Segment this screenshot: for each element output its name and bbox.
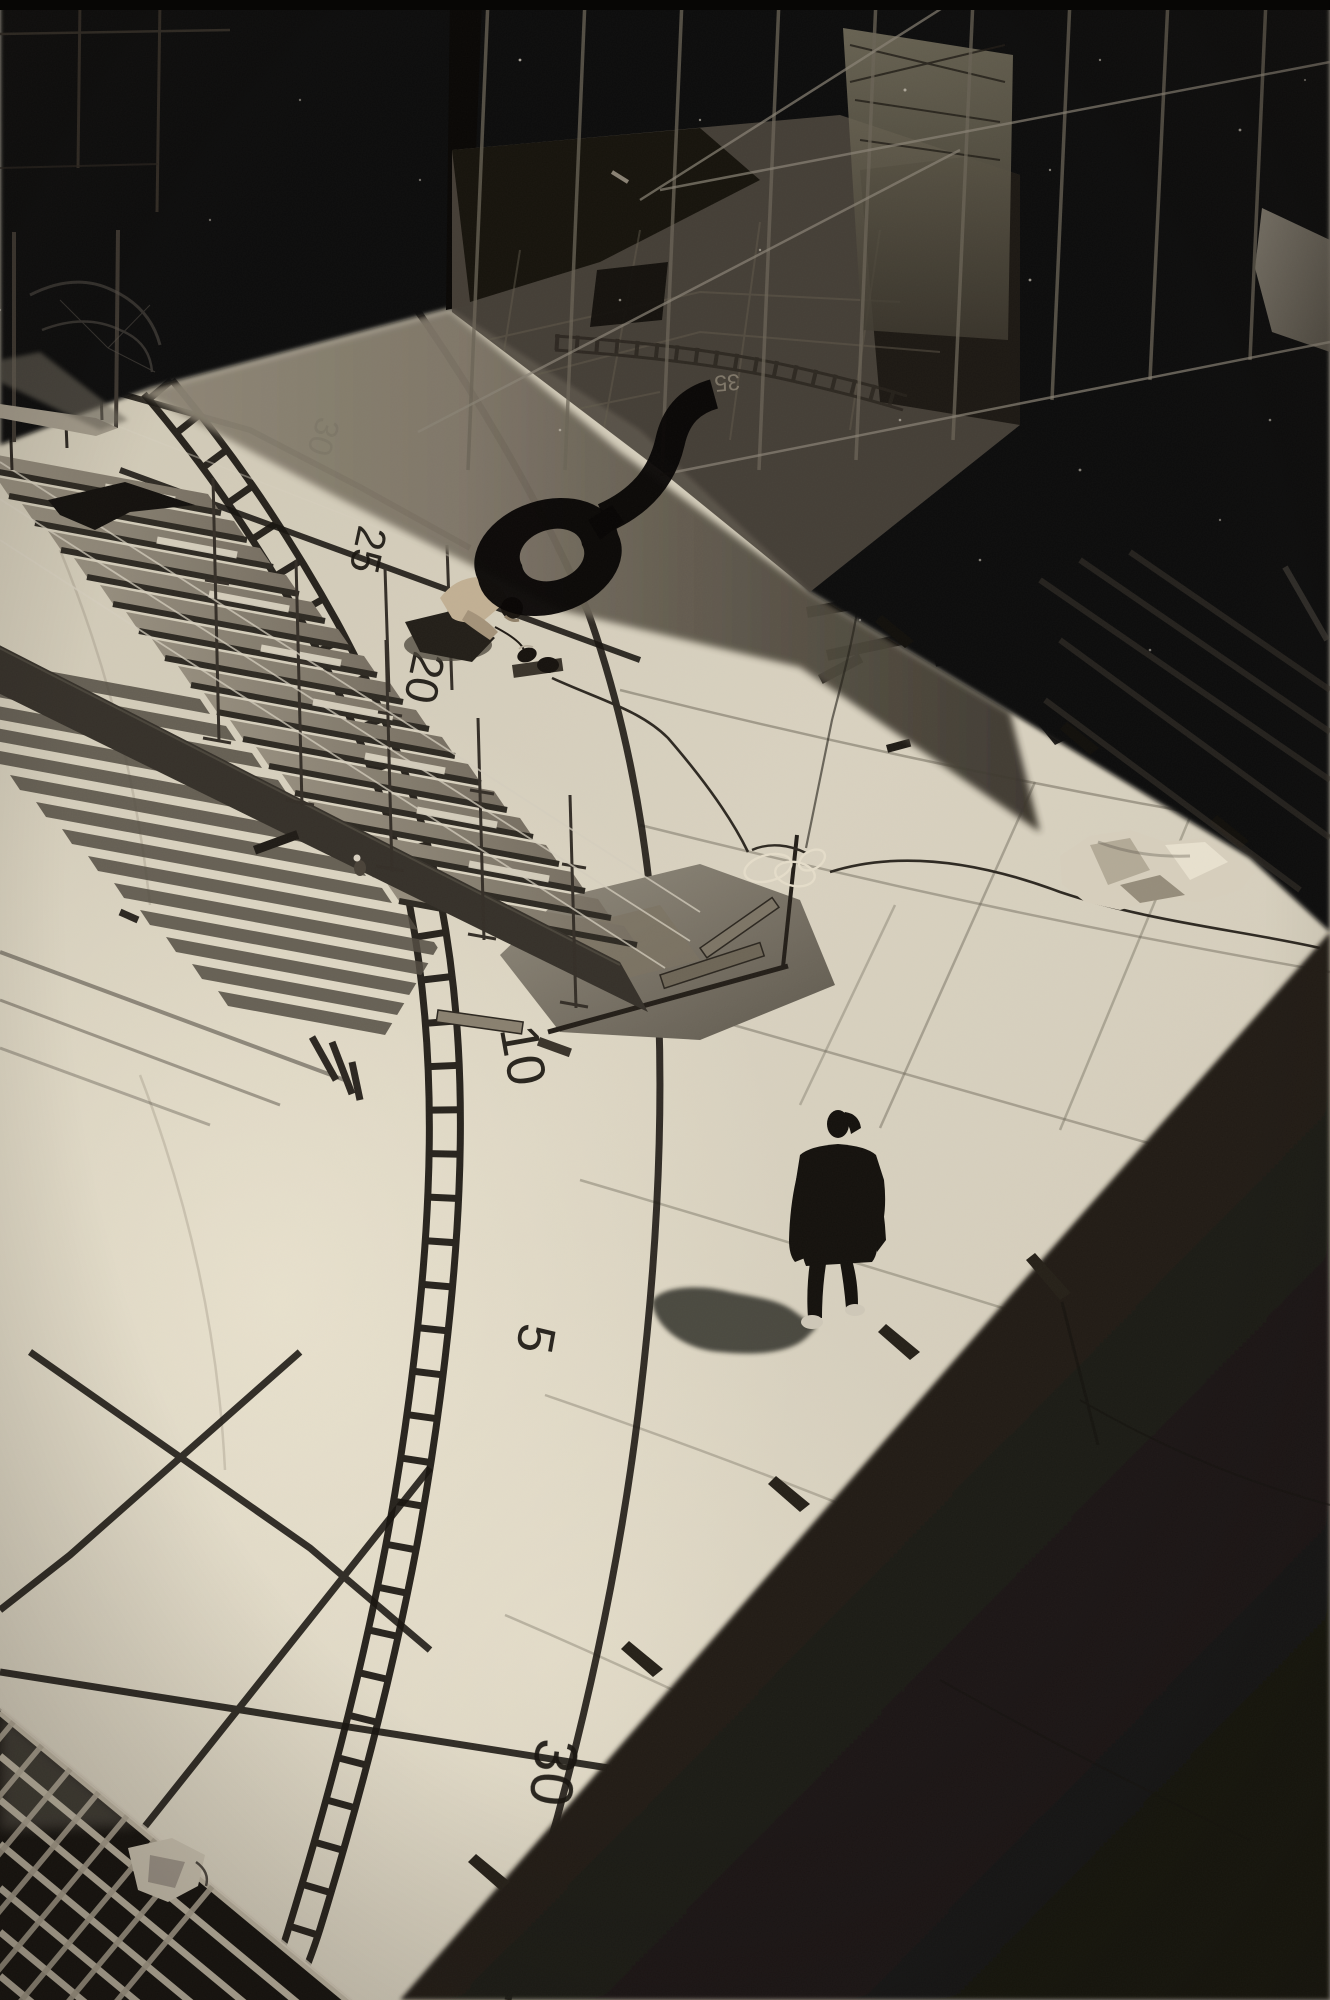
photo-scene: 30 25 20 10 5 30 xyxy=(0,0,1330,2000)
photo-canvas: 30 25 20 10 5 30 xyxy=(0,0,1330,2000)
film-grain xyxy=(0,0,1330,2000)
